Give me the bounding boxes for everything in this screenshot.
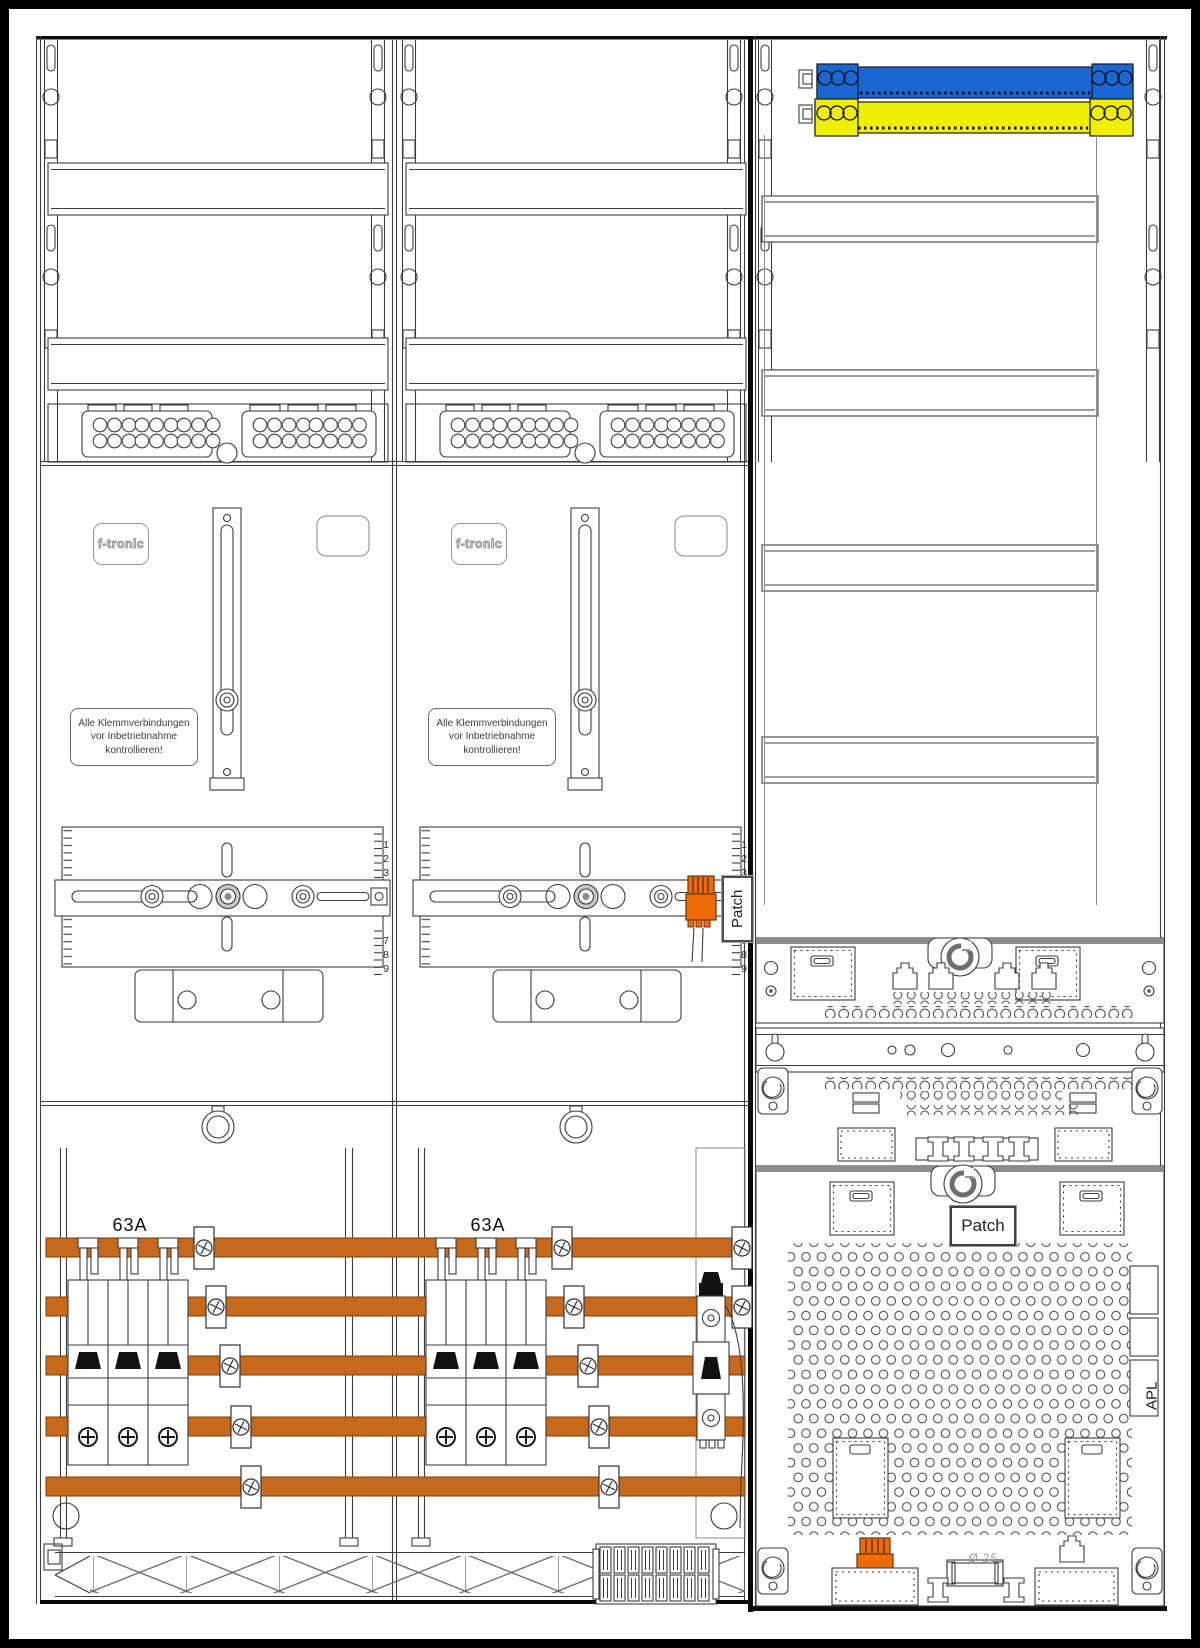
ruler-number: 2 bbox=[375, 852, 389, 865]
ruler-number: 9 bbox=[733, 962, 747, 975]
neutral-bar bbox=[817, 64, 1133, 101]
knockout-diameter-label: Ø 25 bbox=[951, 1551, 1015, 1566]
patch-label-meter2: Patch bbox=[722, 876, 753, 942]
ruler-number: 1 bbox=[733, 838, 747, 851]
breaker-rating-field2: 63A bbox=[465, 1214, 511, 1236]
perforated-band bbox=[758, 1068, 1162, 1161]
warning-line: kontrollieren! bbox=[463, 744, 520, 757]
warning-line: Alle Klemmverbindungen bbox=[78, 717, 189, 730]
distribution-section bbox=[44, 1106, 752, 1604]
warning-label-field1: Alle Klemmverbindungen vor Inbetriebnahm… bbox=[70, 708, 198, 766]
meter-cabinet-wiring-diagram: f-tronic f-tronic Alle Klemmverbindungen… bbox=[0, 0, 1200, 1648]
warning-line: Alle Klemmverbindungen bbox=[436, 717, 547, 730]
warning-line: vor Inbetriebnahme bbox=[91, 730, 177, 743]
warning-line: vor Inbetriebnahme bbox=[449, 730, 535, 743]
breaker-rating-field1: 63A bbox=[107, 1214, 153, 1236]
apl-frame-right bbox=[1065, 1438, 1120, 1518]
ruler-number: 9 bbox=[375, 962, 389, 975]
comm-panel bbox=[756, 938, 1164, 1023]
warning-line: kontrollieren! bbox=[105, 744, 162, 757]
ruler-number: 8 bbox=[733, 948, 747, 961]
patch-label-apl: Patch bbox=[950, 1206, 1016, 1246]
warning-label-field2: Alle Klemmverbindungen vor Inbetriebnahm… bbox=[428, 708, 556, 766]
right-column-strips bbox=[762, 135, 1098, 905]
pe-bar bbox=[815, 99, 1133, 136]
ruler-number: 1 bbox=[375, 838, 389, 851]
ruler-number: 3 bbox=[375, 866, 389, 879]
ruler-number: 8 bbox=[375, 948, 389, 961]
ruler-number: 7 bbox=[375, 934, 389, 947]
breaker-field1 bbox=[68, 1238, 188, 1465]
breaker-field2 bbox=[426, 1238, 546, 1465]
cabinet-line-drawing bbox=[9, 9, 1191, 1639]
brand-logo-field2: f-tronic bbox=[451, 523, 507, 565]
din-rail-right bbox=[756, 1028, 1164, 1072]
ruler-number: 2 bbox=[733, 852, 747, 865]
terminal-strip bbox=[593, 1544, 719, 1604]
apl-frame-left bbox=[833, 1438, 888, 1518]
brand-logo-field1: f-tronic bbox=[93, 523, 149, 565]
bar-mount-clips bbox=[799, 70, 812, 123]
apl-label: APL bbox=[1137, 1367, 1167, 1425]
